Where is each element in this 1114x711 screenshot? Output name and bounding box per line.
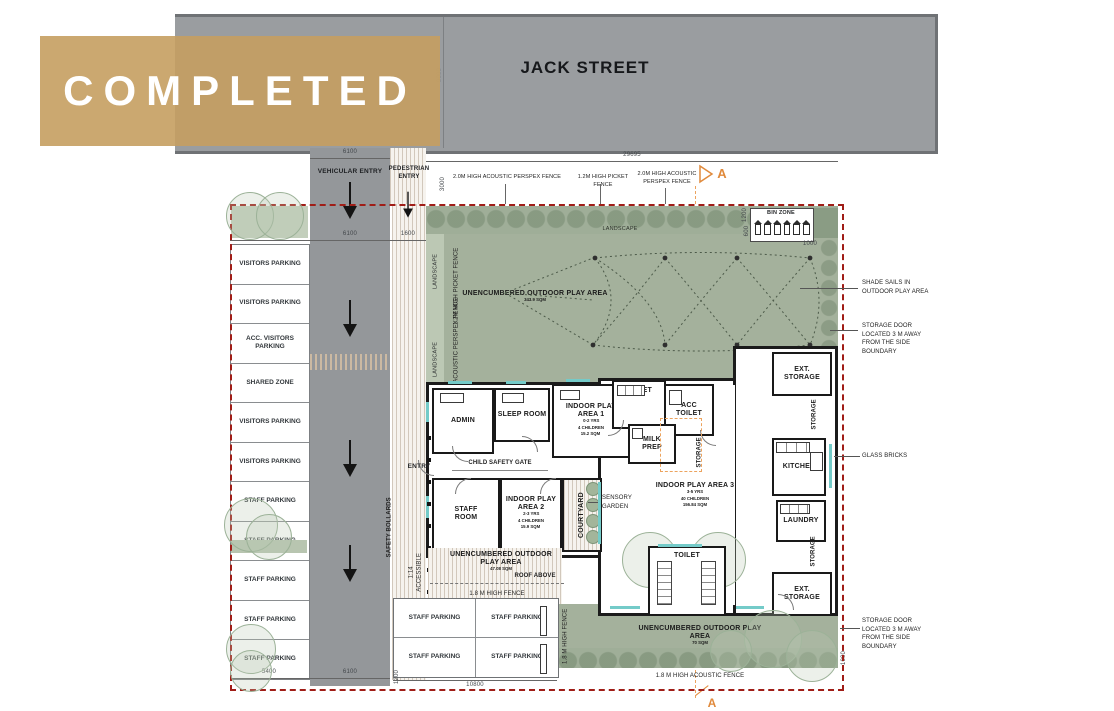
tree	[786, 630, 838, 682]
street-name: JACK STREET	[500, 57, 670, 78]
completed-banner: COMPLETED	[40, 36, 440, 146]
dim-line-street	[443, 17, 444, 148]
dim-top-29695: 29695	[426, 152, 838, 158]
dim-line-29695	[426, 161, 838, 162]
vehicular-entry-label: VEHICULAR ENTRY	[313, 168, 387, 176]
section-a-top: A	[714, 166, 730, 182]
dim-top-3000: 3000	[440, 164, 446, 204]
dim-top-6100: 6100	[310, 149, 390, 155]
fence-note-acoustic-a: 2.0M HIGH ACOUSTIC PERSPEX FENCE	[452, 174, 562, 182]
glass-bricks-note: GLASS BRICKS	[862, 452, 932, 461]
site-plan-page: { "banner": { "label": "COMPLETED" }, "s…	[0, 0, 1114, 710]
fence-leader-a	[505, 184, 506, 204]
fence-leader-b	[600, 184, 601, 204]
storage-door-bottom-leader	[840, 628, 860, 629]
storage-door-note-bottom: STORAGE DOOR LOCATED 3 M AWAY FROM THE S…	[862, 617, 936, 652]
fence-leader-c	[665, 188, 666, 204]
fence-note-acoustic-b: 2.0M HIGH ACOUSTIC PERSPEX FENCE	[636, 171, 698, 187]
tree	[710, 630, 752, 672]
tree	[246, 514, 292, 560]
section-a-triangle	[698, 164, 714, 184]
shade-sails-note: SHADE SAILS IN OUTDOOR PLAY AREA	[862, 279, 940, 296]
shade-sails-leader	[800, 288, 858, 289]
tree	[230, 650, 272, 692]
dim-line-6100	[310, 158, 390, 159]
glass-bricks-leader	[834, 456, 860, 457]
section-a-bottom: A	[704, 696, 720, 711]
storage-door-note-top: STORAGE DOOR LOCATED 3 M AWAY FROM THE S…	[862, 322, 936, 357]
pedestrian-entry-label: PEDESTRIAN ENTRY	[388, 166, 430, 181]
storage-door-top-leader	[830, 330, 858, 331]
tree	[256, 192, 304, 240]
completed-banner-label: COMPLETED	[63, 67, 417, 115]
fence-note-picket: 1.2M HIGH PICKET FENCE	[568, 174, 638, 190]
